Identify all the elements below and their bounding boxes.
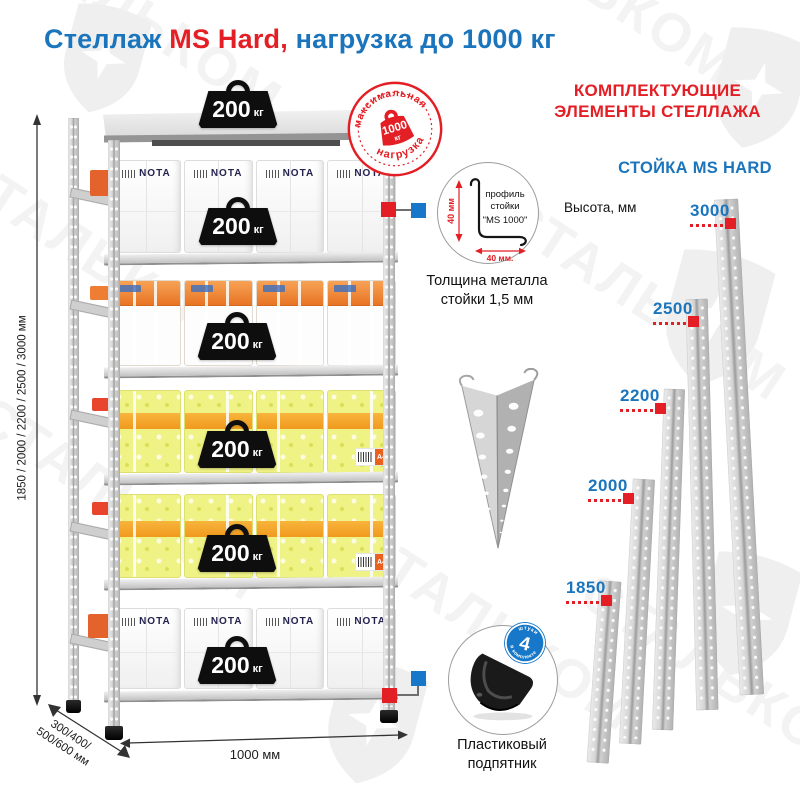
callout-marker-blue: [411, 203, 426, 218]
box-brand-label: NOTA: [283, 168, 315, 179]
callout-line: [397, 694, 419, 696]
barcode-icon: [337, 618, 350, 626]
callout-marker-red: [381, 202, 396, 217]
marker-square: [688, 316, 699, 327]
barcode-icon: [266, 170, 279, 178]
shield-logo-icon: [42, 0, 163, 128]
paper-pack: [112, 390, 181, 473]
svg-text:"MS 1000": "MS 1000": [483, 215, 528, 226]
box-brand-label: NOTA: [211, 168, 243, 179]
shelf-load-weight: 200кг: [197, 636, 277, 684]
shelf-load-weight: 200кг: [198, 80, 278, 128]
rack-shelf: [104, 576, 398, 590]
components-header: КОМПЛЕКТУЮЩИЕ ЭЛЕМЕНТЫ СТЕЛЛАЖА: [540, 80, 775, 123]
dotted-leader: [690, 224, 723, 227]
box-brand-label: NOTA: [354, 616, 386, 627]
barcode-icon: [194, 170, 207, 178]
width-dimension-label: 1000 мм: [205, 747, 305, 762]
marker-square: [655, 403, 666, 414]
shelf-load-weight: 200кг: [198, 197, 278, 245]
post-height-label: 3000: [690, 202, 736, 229]
barcode-icon: [194, 618, 207, 626]
post-height-label: 2500: [653, 300, 699, 327]
callout-marker-blue: [411, 671, 426, 686]
corner-post-image: [452, 366, 542, 558]
barcode-icon: [337, 170, 350, 178]
profile-drawing: 40 мм 40 мм. профиль стойки "MS 1000": [438, 163, 538, 263]
post-height-label: 2000: [588, 477, 634, 504]
paper-box: [112, 280, 181, 366]
shelf-load-weight: 200кг: [197, 312, 277, 360]
shelf-load-weight: 200кг: [197, 420, 277, 468]
post-section-title: СТОЙКА MS HARD: [610, 159, 780, 178]
rack-shelf: [104, 251, 398, 265]
height-dimension-label: 1850 / 2000 / 2200 / 2500 / 3000 мм: [17, 286, 29, 531]
barcode-icon: [122, 170, 135, 178]
marker-square: [725, 218, 736, 229]
paper-pack: [112, 494, 181, 578]
paper-box: NOTA: [112, 160, 181, 253]
rack-foot: [105, 726, 123, 740]
shelf-load-weight: 200кг: [197, 524, 277, 572]
box-brand-label: NOTA: [139, 168, 171, 179]
svg-text:40 мм: 40 мм: [446, 198, 456, 224]
dotted-leader: [653, 322, 686, 325]
product-infographic: СТАЛЬКОМ СТАЛЬКОМ СТАЛЬКОМ СТАЛЬКОМ СТАЛ…: [0, 0, 800, 800]
rack-front-right-post: [383, 138, 395, 712]
title-model: MS Hard,: [162, 24, 288, 54]
marker-square: [623, 493, 634, 504]
callout-marker-red: [382, 688, 397, 703]
profile-detail-circle: 40 мм 40 мм. профиль стойки "MS 1000": [437, 162, 539, 264]
height-dimension-line: [29, 112, 45, 708]
svg-text:стойки: стойки: [490, 201, 519, 212]
post-height-label: 1850: [566, 579, 612, 606]
dotted-leader: [588, 499, 621, 502]
barcode-icon: [266, 618, 279, 626]
foot-caption: Пластиковый подпятник: [417, 736, 587, 774]
post-height-label: 2200: [620, 387, 666, 414]
page-title: Стеллаж MS Hard, нагрузка до 1000 кг: [44, 24, 556, 55]
svg-text:40 мм.: 40 мм.: [487, 253, 514, 263]
box-brand-label: NOTA: [283, 616, 315, 627]
height-units-label: Высота, мм: [564, 200, 636, 215]
marker-square: [601, 595, 612, 606]
dotted-leader: [566, 601, 599, 604]
title-prefix: Стеллаж: [44, 24, 162, 54]
rack-shelf: [104, 471, 398, 485]
barcode-icon: [122, 618, 135, 626]
rack-front-left-post: [108, 140, 120, 728]
rack-top-shelf-shadow: [152, 140, 340, 146]
box-brand-label: NOTA: [211, 616, 243, 627]
box-brand-label: NOTA: [139, 616, 171, 627]
dotted-leader: [620, 409, 653, 412]
paper-box: NOTA: [112, 608, 181, 689]
title-suffix: нагрузка до 1000 кг: [288, 24, 556, 54]
svg-text:профиль: профиль: [485, 189, 524, 200]
profile-caption: Толщина металла стойки 1,5 мм: [407, 272, 567, 310]
rack-shelf: [104, 364, 398, 378]
rack-foot: [380, 710, 398, 723]
